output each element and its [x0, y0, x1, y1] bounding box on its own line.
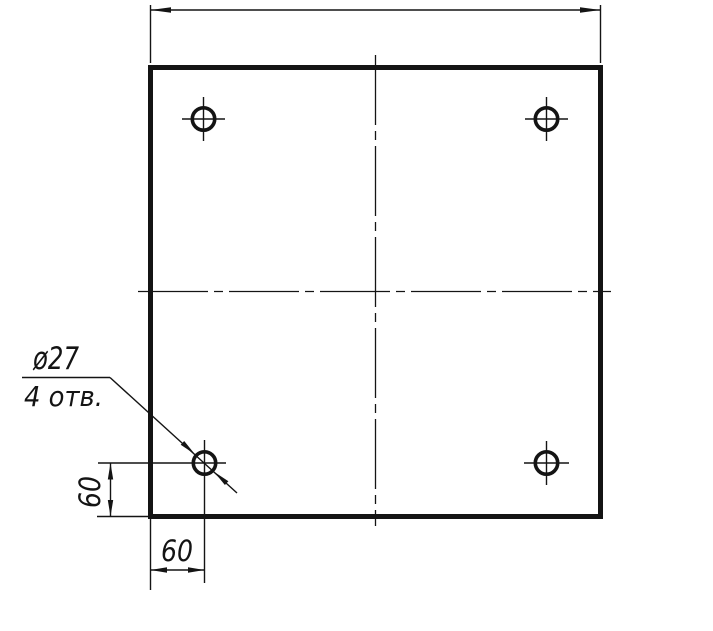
- dimension-60-vertical: 60: [73, 463, 148, 517]
- dim-60-horizontal-label: 60: [161, 534, 193, 568]
- arrowhead-left-icon: [151, 7, 172, 12]
- hole-top-right: [525, 97, 568, 141]
- holes-count-label: 4 отв.: [24, 380, 103, 413]
- engineering-drawing: ø27 4 отв. 60 60: [0, 0, 713, 631]
- drawing-sheet: ø27 4 отв. 60 60: [0, 0, 713, 631]
- arrowhead-down-icon: [108, 500, 113, 517]
- arrowhead-right-icon: [188, 567, 205, 572]
- overall-width-dimension: [151, 5, 601, 63]
- leader-arrowhead-upper-icon: [181, 441, 195, 454]
- hole-diameter-label: ø27: [32, 341, 79, 377]
- arrowhead-left-icon: [151, 567, 168, 572]
- hole-top-left: [182, 97, 225, 141]
- arrowhead-right-icon: [580, 7, 601, 12]
- arrowhead-up-icon: [108, 463, 113, 480]
- dim-60-vertical-label: 60: [73, 476, 107, 508]
- leader-arrowhead-lower-icon: [214, 472, 228, 485]
- dimension-60-horizontal: 60: [151, 519, 205, 590]
- hole-bottom-right: [524, 441, 569, 485]
